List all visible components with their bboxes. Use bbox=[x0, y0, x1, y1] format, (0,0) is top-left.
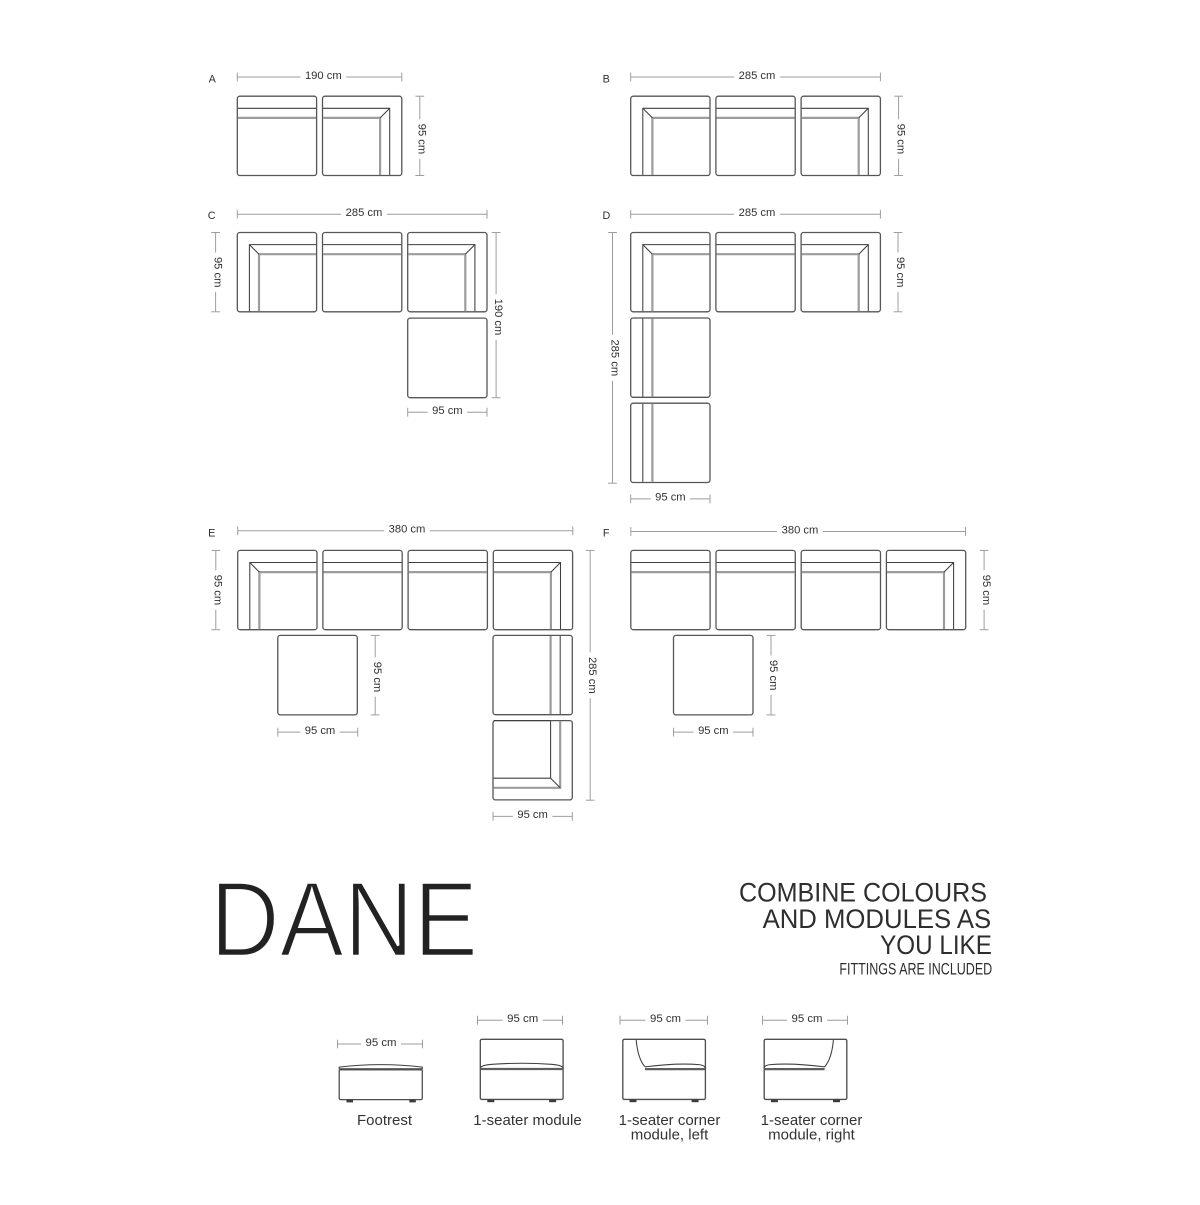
svg-text:95 cm: 95 cm bbox=[211, 257, 223, 287]
svg-text:95 cm: 95 cm bbox=[507, 1013, 538, 1025]
svg-text:95 cm: 95 cm bbox=[371, 662, 383, 692]
svg-text:95 cm: 95 cm bbox=[650, 1013, 681, 1025]
svg-text:95 cm: 95 cm bbox=[517, 809, 547, 821]
svg-text:module, left: module, left bbox=[631, 1127, 709, 1144]
svg-text:95 cm: 95 cm bbox=[432, 405, 462, 417]
svg-text:Footrest: Footrest bbox=[357, 1112, 413, 1129]
svg-text:190 cm: 190 cm bbox=[305, 70, 342, 82]
svg-text:C: C bbox=[208, 210, 216, 222]
svg-text:95 cm: 95 cm bbox=[980, 575, 992, 605]
svg-text:YOU LIKE: YOU LIKE bbox=[880, 930, 992, 960]
svg-text:95 cm: 95 cm bbox=[767, 660, 779, 690]
svg-text:285 cm: 285 cm bbox=[739, 70, 776, 82]
svg-text:95 cm: 95 cm bbox=[212, 575, 224, 605]
svg-text:95 cm: 95 cm bbox=[698, 725, 728, 737]
svg-text:FITTINGS ARE INCLUDED: FITTINGS ARE INCLUDED bbox=[839, 961, 992, 979]
svg-text:285 cm: 285 cm bbox=[608, 339, 620, 376]
svg-text:B: B bbox=[603, 73, 610, 85]
svg-text:190 cm: 190 cm bbox=[492, 299, 504, 336]
svg-text:F: F bbox=[603, 527, 610, 539]
svg-text:380 cm: 380 cm bbox=[782, 524, 819, 536]
svg-text:D: D bbox=[602, 210, 610, 222]
svg-text:285 cm: 285 cm bbox=[739, 207, 776, 219]
svg-text:A: A bbox=[209, 73, 217, 85]
svg-text:95 cm: 95 cm bbox=[305, 725, 335, 737]
svg-text:95 cm: 95 cm bbox=[791, 1013, 822, 1025]
svg-text:DANE: DANE bbox=[210, 859, 478, 979]
svg-text:95 cm: 95 cm bbox=[894, 257, 906, 287]
svg-text:95 cm: 95 cm bbox=[416, 124, 428, 154]
svg-text:380 cm: 380 cm bbox=[389, 524, 426, 536]
svg-text:module, right: module, right bbox=[768, 1127, 856, 1144]
svg-text:285 cm: 285 cm bbox=[586, 657, 598, 694]
svg-text:285 cm: 285 cm bbox=[346, 207, 383, 219]
svg-text:1-seater module: 1-seater module bbox=[473, 1112, 581, 1129]
svg-text:E: E bbox=[208, 528, 215, 540]
svg-text:COMBINE COLOURS: COMBINE COLOURS bbox=[739, 877, 987, 907]
svg-text:95 cm: 95 cm bbox=[894, 124, 906, 154]
svg-text:95 cm: 95 cm bbox=[365, 1037, 396, 1049]
svg-text:95 cm: 95 cm bbox=[655, 492, 685, 504]
